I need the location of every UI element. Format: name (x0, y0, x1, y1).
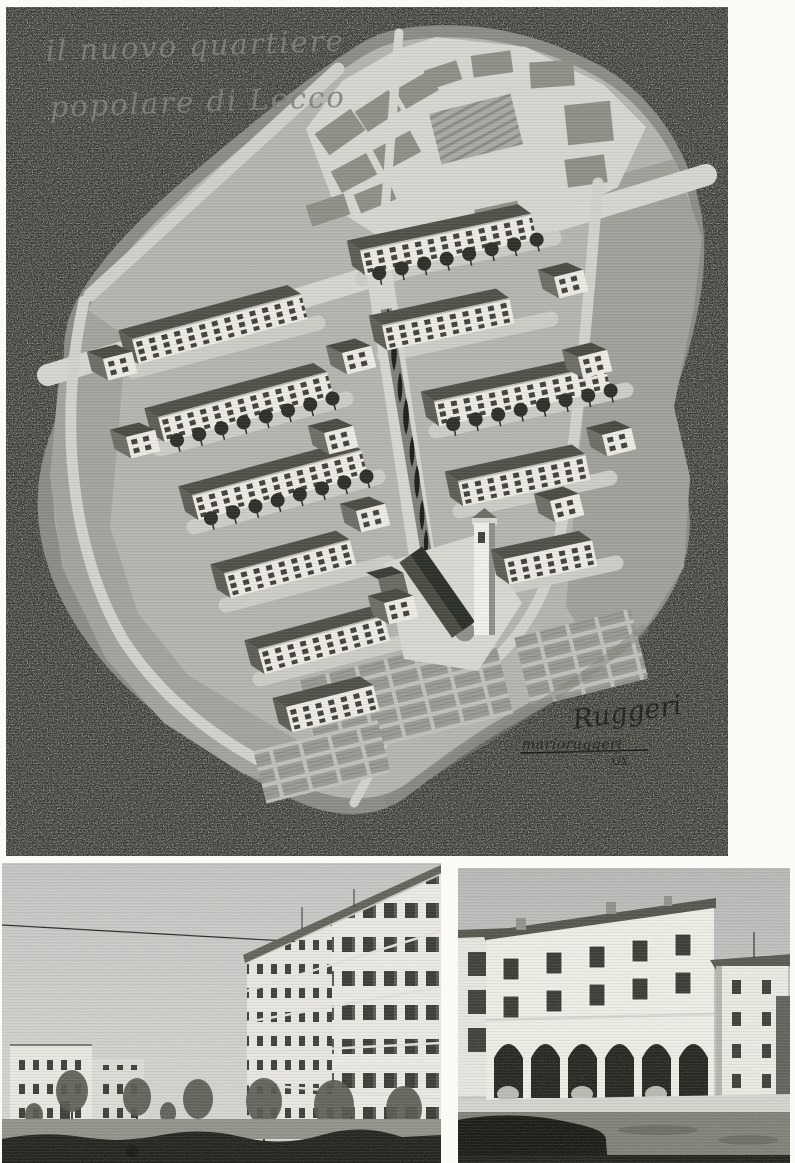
photo-apartment-blocks (2, 863, 441, 1163)
arcade-building-drawing (458, 868, 790, 1163)
apartment-blocks-drawing (2, 863, 441, 1163)
axonometric-plate: il nuovo quartiere popolare di Lecco Rug… (6, 7, 728, 856)
site-plan-illustration: il nuovo quartiere popolare di Lecco Rug… (6, 7, 728, 856)
scanned-magazine-page: { "plate": { "caption": { "line1": "il n… (0, 0, 795, 1163)
photo-arcade-building (458, 868, 790, 1163)
signature-year: XIX (609, 757, 629, 768)
church-campanile (472, 508, 497, 635)
